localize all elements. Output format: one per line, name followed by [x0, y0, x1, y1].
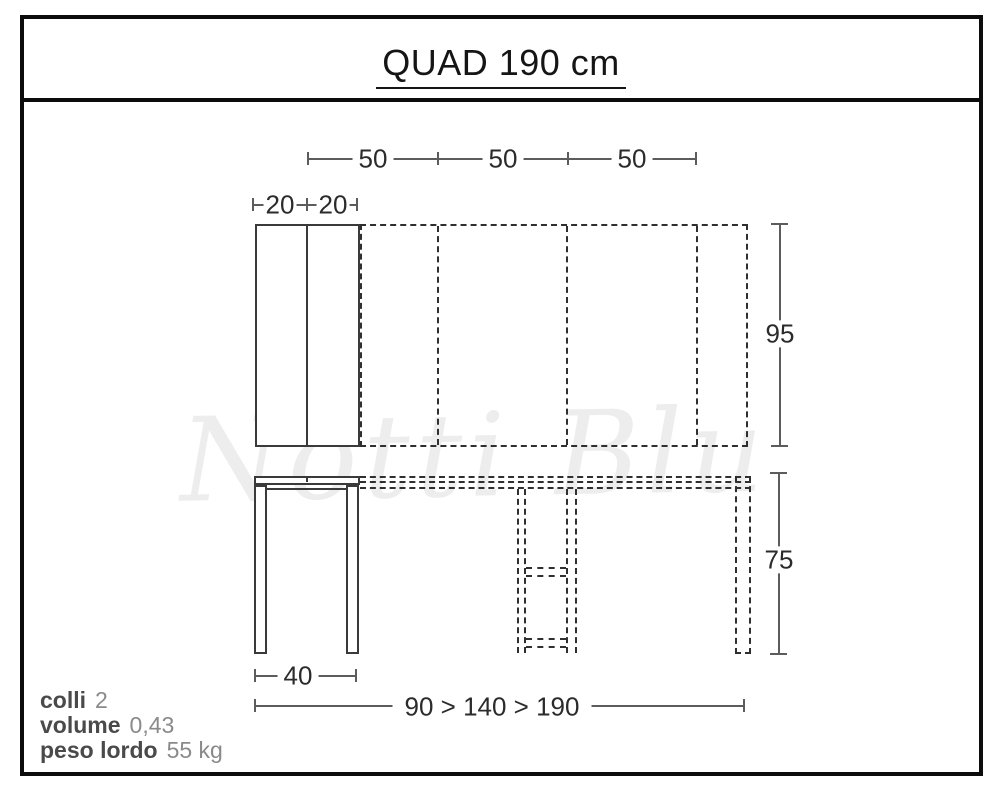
- dim-tick: [252, 198, 254, 211]
- dim-tick: [743, 699, 745, 712]
- dim-label-base: 40: [278, 662, 319, 689]
- extension-top-line: [360, 476, 751, 478]
- info-row-colli: colli2: [40, 688, 223, 713]
- extension-mid-leg-back: [566, 489, 577, 653]
- dim-tick: [567, 152, 569, 165]
- front-view-left-leg: [254, 485, 267, 654]
- info-label: volume: [40, 712, 121, 738]
- dim-tick: [770, 472, 787, 474]
- dim-tick: [254, 669, 256, 682]
- packaging-info: colli2 volume0,43 peso lordo55 kg: [40, 688, 223, 763]
- extension-top-line: [360, 481, 751, 483]
- extension-leg-crossbar: [526, 638, 566, 648]
- info-value: 0,43: [130, 712, 175, 738]
- dim-tick: [254, 699, 256, 712]
- extension-mid-leg-front: [517, 489, 526, 653]
- dim-label-height: 75: [759, 546, 800, 573]
- dim-label-fold-1: 20: [264, 191, 297, 218]
- dim-tick: [771, 445, 788, 447]
- title-divider: [20, 98, 983, 102]
- dim-label-depth: 95: [760, 320, 801, 347]
- top-view-leaf-divider: [437, 226, 439, 445]
- front-view-right-leg: [346, 485, 359, 654]
- dim-tick: [771, 223, 788, 225]
- info-row-peso-lordo: peso lordo55 kg: [40, 738, 223, 763]
- dim-label-fold-2: 20: [317, 191, 350, 218]
- tabletop-seam: [306, 478, 308, 482]
- info-label: colli: [40, 687, 86, 713]
- top-view-leaf-divider: [566, 226, 568, 445]
- extension-top-line: [360, 487, 751, 489]
- dim-tick: [356, 198, 358, 211]
- title-bar: QUAD 190 cm: [0, 42, 1002, 89]
- info-value: 2: [95, 687, 108, 713]
- info-row-volume: volume0,43: [40, 713, 223, 738]
- dim-label-leaf-2: 50: [483, 145, 524, 172]
- info-label: peso lordo: [40, 737, 158, 763]
- dim-label-width: 90 > 140 > 190: [393, 693, 592, 720]
- dim-tick: [695, 152, 697, 165]
- front-view-tabletop: [254, 476, 360, 485]
- top-view-leaf-divider: [696, 226, 698, 445]
- dim-label-leaf-3: 50: [612, 145, 653, 172]
- dim-tick: [307, 152, 309, 165]
- top-view-fold-seam: [306, 224, 308, 447]
- info-value: 55 kg: [167, 737, 223, 763]
- extension-end-leg: [735, 476, 751, 654]
- dim-tick: [306, 198, 308, 211]
- dim-tick: [770, 653, 787, 655]
- dim-tick: [437, 152, 439, 165]
- dim-tick: [355, 669, 357, 682]
- extension-leg-crossbar: [526, 567, 566, 577]
- front-view-apron: [258, 488, 357, 490]
- top-view-extension-outline: [360, 224, 748, 447]
- diagram-canvas: Notti Blu QUAD 190 cm 50 50 50 20 20 95: [0, 0, 1002, 800]
- page-title: QUAD 190 cm: [376, 42, 626, 89]
- dim-label-leaf-1: 50: [353, 145, 394, 172]
